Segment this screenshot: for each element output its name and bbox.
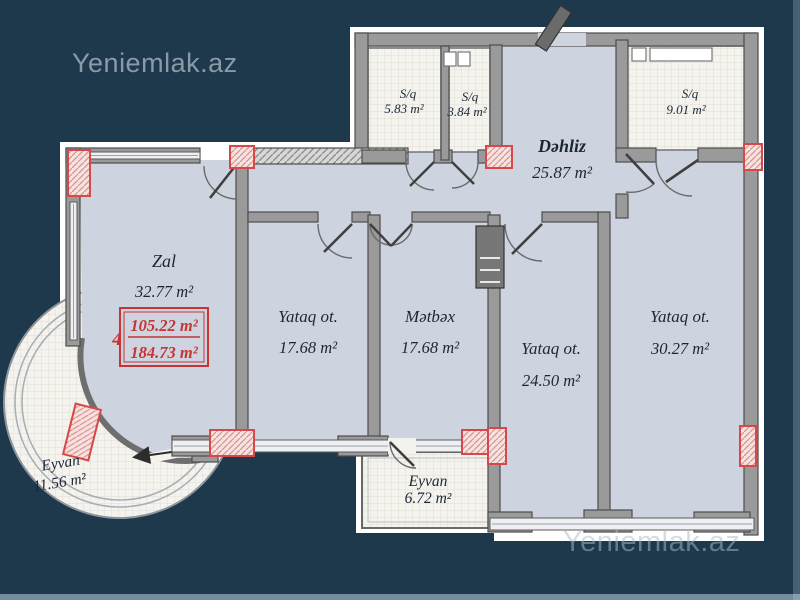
- watermark-top-left: Yeniemlak.az: [72, 48, 238, 78]
- window-marker: [486, 146, 512, 168]
- room-yataq-2-area: 24.50 m²: [522, 371, 581, 390]
- wall-segment: [236, 163, 248, 448]
- room-yataq-1-area: 17.68 m²: [279, 338, 338, 357]
- window-marker: [210, 430, 254, 456]
- room-sq-3-name: S/q: [682, 86, 699, 101]
- edge-strip-right: [793, 0, 800, 600]
- room-dehliz-name: Dəhliz: [537, 136, 586, 156]
- fixture: [632, 48, 646, 61]
- wall-segment: [362, 150, 406, 163]
- vent-shaft: [476, 226, 504, 288]
- watermark-bottom-right: Yeniemlak.az: [563, 526, 740, 558]
- window-marker: [68, 150, 90, 196]
- stamp-value-bottom: 184.73 m²: [130, 343, 198, 362]
- room-metbex-area: 17.68 m²: [401, 338, 460, 357]
- room-sq-2-area: 3.84 m²: [446, 104, 487, 119]
- room-sq-3-area: 9.01 m²: [666, 102, 706, 117]
- floor-yataq-3-upper: [610, 158, 752, 218]
- fixture: [444, 52, 456, 66]
- room-metbex-name: Mətbəx: [404, 307, 455, 326]
- room-eyvan-2-area: 6.72 m²: [405, 490, 452, 507]
- room-yataq-2-name: Yataq ot.: [521, 339, 581, 358]
- room-yataq-3-name: Yataq ot.: [650, 307, 710, 326]
- window-marker: [230, 146, 254, 168]
- fixture: [458, 52, 470, 66]
- wall-segment: [616, 40, 628, 152]
- stamp-value-top: 105.22 m²: [130, 316, 198, 335]
- wall-segment: [598, 212, 610, 528]
- room-zal-name: Zal: [152, 251, 176, 271]
- room-zal-area: 32.77 m²: [134, 282, 194, 301]
- room-sq-1-name: S/q: [400, 86, 417, 101]
- room-dehliz-area: 25.87 m²: [532, 163, 593, 182]
- fixture: [650, 48, 712, 61]
- room-sq-2-name: S/q: [462, 89, 479, 104]
- wall-segment: [248, 212, 318, 222]
- wall-segment: [352, 212, 370, 222]
- wall-segment: [542, 212, 600, 222]
- floorplan-image: Yeniemlak.az: [0, 0, 800, 600]
- window-marker: [740, 426, 756, 466]
- wall-segment: [616, 148, 656, 162]
- room-yataq-1-name: Yataq ot.: [278, 307, 338, 326]
- wall-segment: [616, 194, 628, 218]
- wall-segment: [698, 148, 750, 162]
- wall-segment: [355, 33, 368, 163]
- stamp-storey: 4: [111, 329, 122, 350]
- window-marker: [488, 428, 506, 464]
- room-sq-1-area: 5.83 m²: [384, 101, 424, 116]
- edge-strip-bottom: [0, 594, 800, 600]
- room-yataq-3-area: 30.27 m²: [650, 339, 710, 358]
- room-eyvan-2-name: Eyvan: [408, 473, 448, 490]
- window-marker: [744, 144, 762, 170]
- wall-segment: [412, 212, 490, 222]
- wall-segment: [368, 215, 380, 448]
